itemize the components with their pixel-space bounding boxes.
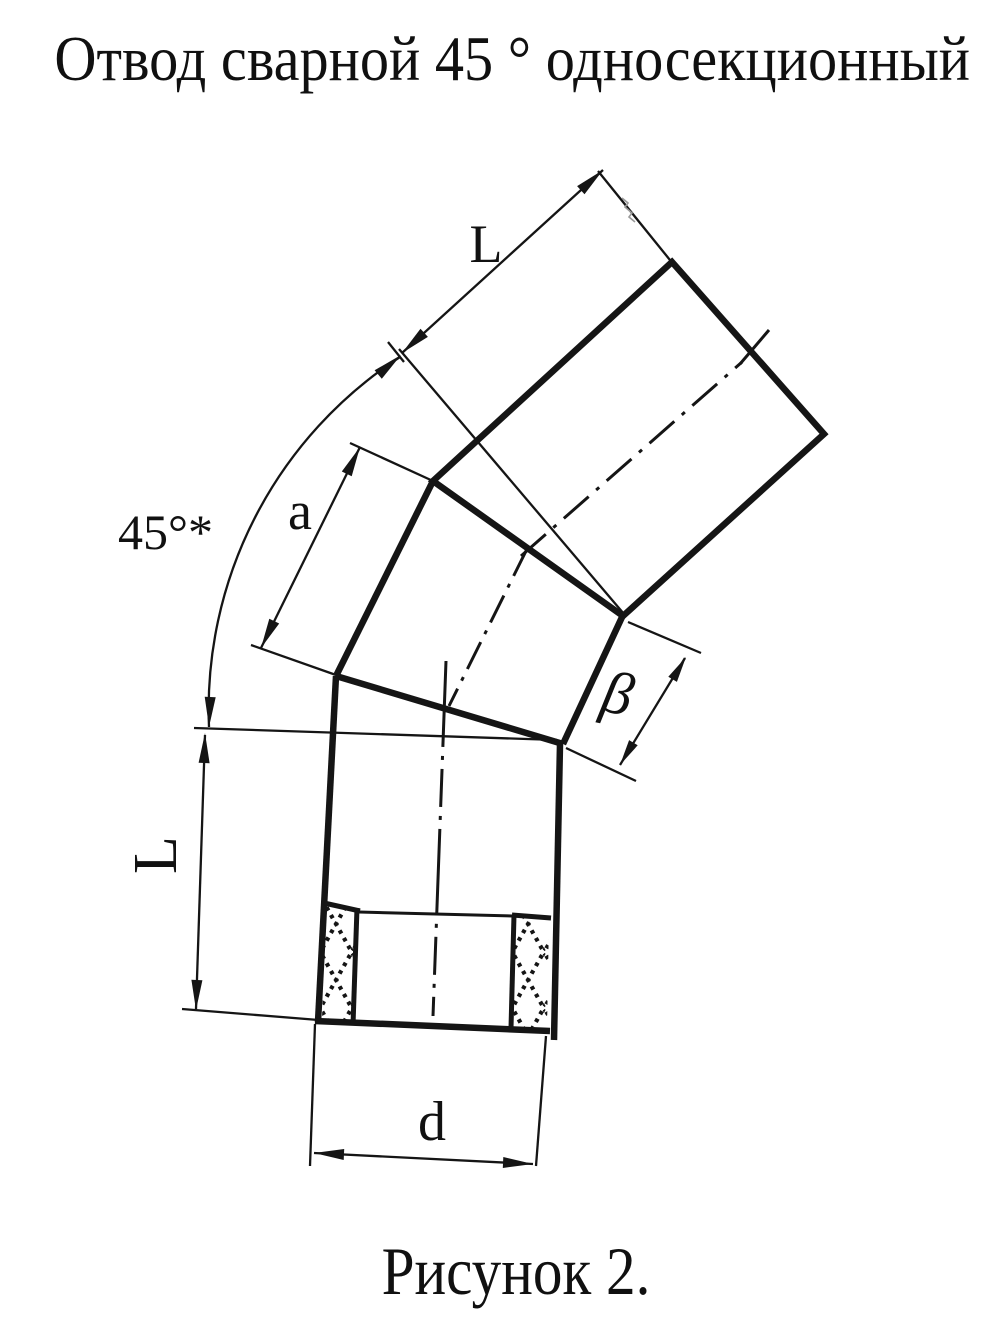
svg-text:45°*: 45°* (118, 504, 213, 560)
svg-text:L: L (470, 214, 503, 274)
svg-text:d: d (418, 1091, 446, 1153)
svg-text:L: L (122, 836, 190, 874)
svg-text:β: β (595, 658, 639, 729)
svg-text:a: a (288, 481, 312, 541)
